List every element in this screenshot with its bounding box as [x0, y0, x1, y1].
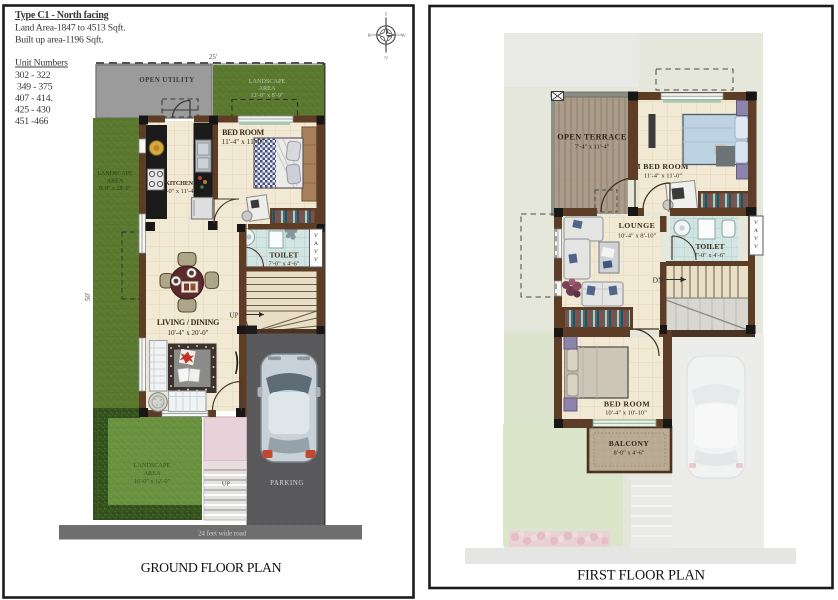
svg-text:A: A: [314, 241, 318, 247]
svg-text:8'-0" x 4'-6": 8'-0" x 4'-6": [614, 450, 645, 457]
svg-text:10'-4" x 20'-0": 10'-4" x 20'-0": [168, 329, 209, 337]
svg-text:A: A: [754, 228, 758, 234]
svg-text:BED ROOM: BED ROOM: [604, 400, 651, 409]
svg-text:AREA: AREA: [107, 179, 124, 185]
svg-text:25': 25': [209, 53, 217, 61]
svg-text:302 - 322: 302 - 322: [15, 70, 51, 81]
svg-text:11'-4" x 11'-0": 11'-4" x 11'-0": [644, 173, 682, 180]
svg-text:DN: DN: [653, 276, 664, 285]
svg-text:Type C1 - North facing: Type C1 - North facing: [15, 10, 109, 21]
svg-text:OPEN UTILITY: OPEN UTILITY: [139, 77, 194, 84]
svg-text:451 -466: 451 -466: [15, 116, 48, 127]
svg-text:TOILET: TOILET: [270, 251, 299, 260]
svg-text:8'-0" x 28'-9": 8'-0" x 28'-9": [99, 186, 132, 192]
svg-text:AREA: AREA: [259, 85, 276, 92]
svg-text:16'-0" x 12'-0": 16'-0" x 12'-0": [134, 478, 171, 485]
svg-text:BALCONY: BALCONY: [609, 439, 650, 448]
svg-text:24 feet wide road: 24 feet wide road: [198, 529, 247, 538]
svg-text:7'-0" x 11'-4": 7'-0" x 11'-4": [162, 188, 196, 195]
svg-text:S: S: [385, 13, 388, 18]
svg-text:407 - 414.: 407 - 414.: [15, 93, 53, 104]
svg-text:Unit Numbers: Unit Numbers: [15, 58, 68, 69]
svg-text:KITCHEN: KITCHEN: [165, 180, 194, 187]
svg-text:7'-0" x 4'-6": 7'-0" x 4'-6": [269, 261, 300, 268]
svg-text:PARKING: PARKING: [270, 480, 304, 487]
svg-text:TOILET: TOILET: [696, 242, 725, 251]
svg-text:BED ROOM: BED ROOM: [222, 128, 265, 137]
svg-text:V: V: [314, 257, 318, 263]
svg-text:Land Area-1847 to 4513 Sqft.: Land Area-1847 to 4513 Sqft.: [15, 23, 125, 34]
svg-text:11'-4" x 11'-0": 11'-4" x 11'-0": [222, 137, 265, 146]
svg-text:LANDSCAPE: LANDSCAPE: [249, 78, 286, 85]
svg-text:M BED ROOM: M BED ROOM: [633, 162, 689, 171]
svg-text:V: V: [754, 220, 758, 226]
svg-text:GROUND FLOOR PLAN: GROUND FLOOR PLAN: [141, 560, 282, 575]
svg-text:349 - 375: 349 - 375: [17, 82, 53, 93]
svg-text:V: V: [754, 236, 758, 242]
svg-text:LANDSCAPE: LANDSCAPE: [97, 171, 133, 177]
svg-text:V: V: [754, 244, 758, 250]
svg-text:UP: UP: [230, 312, 239, 320]
svg-text:7'-4" x 11'-4": 7'-4" x 11'-4": [575, 144, 610, 151]
svg-text:10'-4" x 8'-10": 10'-4" x 8'-10": [618, 233, 657, 240]
svg-text:OPEN TERRACE: OPEN TERRACE: [557, 133, 627, 142]
svg-text:425 - 430: 425 - 430: [15, 105, 51, 116]
svg-text:N: N: [384, 57, 388, 62]
svg-text:LOUNGE: LOUNGE: [619, 221, 656, 230]
svg-text:50': 50': [84, 293, 92, 301]
svg-text:AREA: AREA: [144, 470, 161, 477]
svg-text:10'-4" x 10'-10": 10'-4" x 10'-10": [605, 410, 647, 417]
svg-text:7'-0" x 4'-6": 7'-0" x 4'-6": [695, 252, 726, 259]
svg-text:Built up area-1196 Sqft.: Built up area-1196 Sqft.: [15, 35, 103, 46]
svg-text:E: E: [367, 34, 370, 39]
svg-text:LIVING / DINING: LIVING / DINING: [157, 318, 219, 327]
svg-text:V: V: [314, 249, 318, 255]
svg-text:FIRST FLOOR PLAN: FIRST FLOOR PLAN: [577, 568, 705, 584]
svg-text:W: W: [401, 34, 406, 39]
svg-text:12'-0" x 8'-9": 12'-0" x 8'-9": [250, 92, 284, 99]
svg-text:UP: UP: [222, 481, 231, 488]
svg-text:LANDSCAPE: LANDSCAPE: [134, 462, 171, 469]
svg-text:V: V: [314, 233, 318, 239]
